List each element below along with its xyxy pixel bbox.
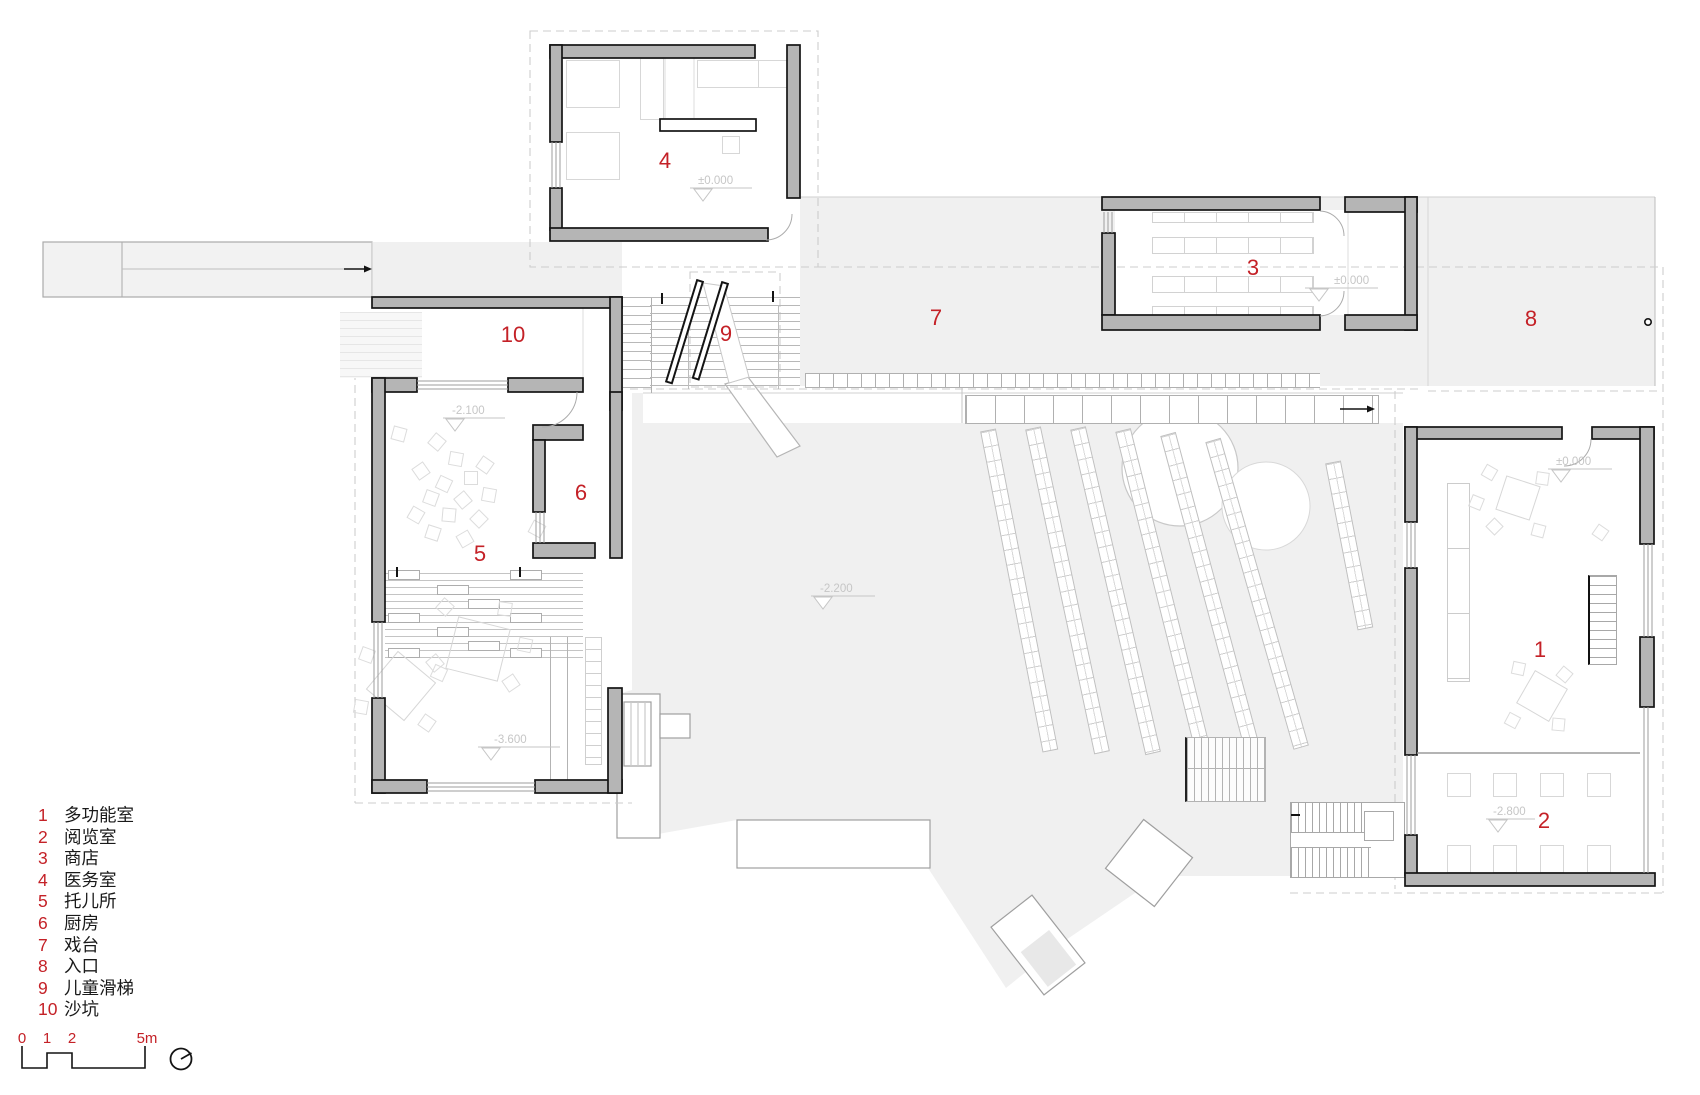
scale-bar: 0 1 2 5m [18,1030,192,1070]
legend-item-label: 沙坑 [64,999,99,1021]
svg-text:-2.100: -2.100 [452,405,485,417]
room-number-labels: 1 2 3 4 5 6 7 8 9 10 [474,148,1550,833]
plan-wall-layer: ±0.000 ±0.000 ±0.000 -2.100 -2.200 [0,0,1700,1095]
room-label-5: 5 [474,541,486,566]
elevation-marker: ±0.000 [690,175,752,201]
legend-item: 6厨房 [38,913,134,935]
room-label-1: 1 [1534,637,1546,662]
legend-item-label: 入口 [64,956,99,978]
children-slide [666,280,749,383]
room-label-10: 10 [501,322,525,347]
legend-item-number: 6 [38,913,64,935]
scale-tick-0: 0 [18,1030,26,1047]
legend-item: 3商店 [38,848,134,870]
legend-item: 2阅览室 [38,827,134,849]
legend-item-number: 1 [38,805,64,827]
north-symbol [171,1049,192,1070]
legend-item: 10沙坑 [38,999,134,1021]
legend-item-label: 阅览室 [64,827,117,849]
svg-text:±0.000: ±0.000 [1556,456,1591,468]
legend: 1多功能室 2阅览室 3商店 4医务室 5托儿所 6厨房 7戏台 8入口 9儿童… [38,805,134,1021]
legend-item-label: 多功能室 [64,805,134,827]
legend-item-label: 戏台 [64,935,99,957]
window-lines [374,142,1652,873]
elevation-marker: -2.800 [1486,806,1535,832]
legend-item: 5托儿所 [38,891,134,913]
legend-item-label: 商店 [64,848,99,870]
legend-item-number: 10 [38,999,64,1021]
scale-tick-2: 2 [68,1030,76,1047]
scale-bar-shape [22,1046,145,1068]
elevation-marker: -3.600 [478,734,560,760]
room-label-7: 7 [930,305,942,330]
entrance-point [1645,319,1651,325]
floor-plan-canvas: ±0.000 ±0.000 ±0.000 -2.100 -2.200 [0,0,1700,1095]
svg-text:-2.200: -2.200 [820,583,853,595]
legend-item: 9儿童滑梯 [38,978,134,1000]
svg-text:±0.000: ±0.000 [698,175,733,187]
legend-item-number: 4 [38,870,64,892]
legend-item-number: 9 [38,978,64,1000]
room-label-3: 3 [1247,255,1259,280]
elevation-marker: -2.200 [811,583,875,609]
room-label-6: 6 [575,480,587,505]
walls [372,45,1655,886]
room-label-2: 2 [1538,808,1550,833]
room-label-9: 9 [720,321,732,346]
legend-item-number: 5 [38,891,64,913]
room-label-4: 4 [659,148,671,173]
scale-tick-5m: 5m [137,1030,158,1047]
scale-tick-1: 1 [43,1030,51,1047]
svg-text:-3.600: -3.600 [494,734,527,746]
elevation-marker: ±0.000 [1305,275,1378,301]
legend-item-number: 7 [38,935,64,957]
legend-item: 1多功能室 [38,805,134,827]
room-label-8: 8 [1525,306,1537,331]
legend-item: 7戏台 [38,935,134,957]
elevation-marker: -2.100 [443,405,505,431]
legend-item: 4医务室 [38,870,134,892]
legend-item-label: 托儿所 [64,891,117,913]
exam-table [660,119,756,131]
legend-item-label: 医务室 [64,870,117,892]
legend-item-label: 儿童滑梯 [64,978,134,1000]
elevation-marker: ±0.000 [1548,456,1612,482]
legend-item: 8入口 [38,956,134,978]
legend-item-number: 8 [38,956,64,978]
legend-item-number: 2 [38,827,64,849]
legend-item-number: 3 [38,848,64,870]
legend-item-label: 厨房 [64,913,99,935]
svg-text:-2.800: -2.800 [1493,806,1526,818]
svg-text:±0.000: ±0.000 [1334,275,1369,287]
